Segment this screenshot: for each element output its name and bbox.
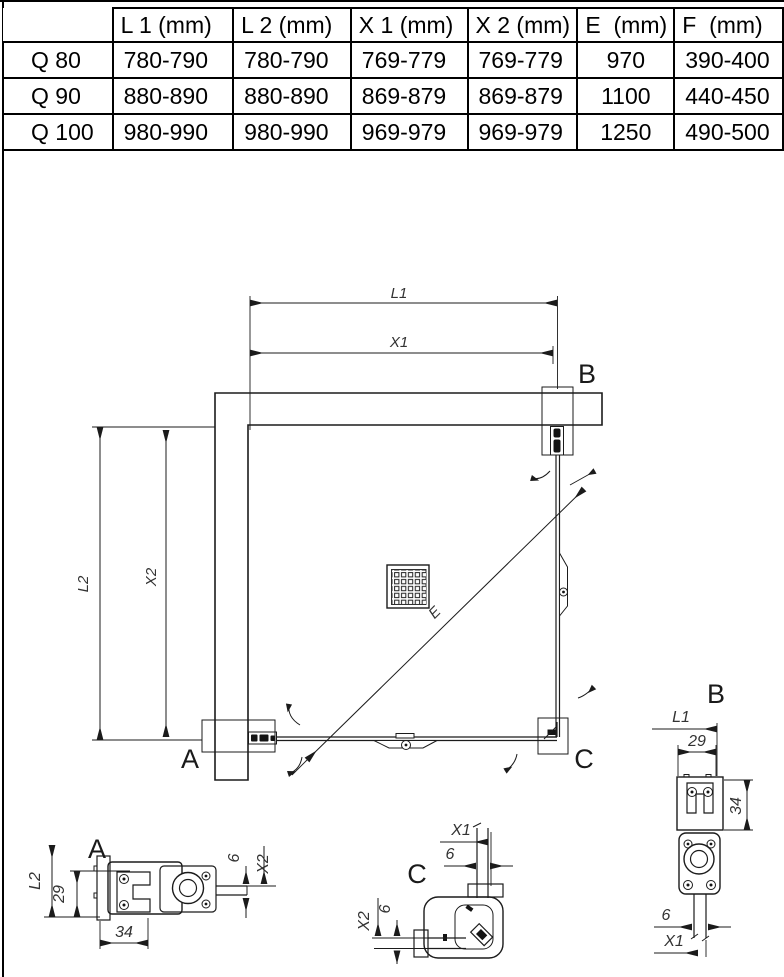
detail-b-label: B [707,679,725,709]
callout-label-b: B [578,359,596,389]
dim-label-x2: X2 [143,567,160,587]
detail-b-dim-6: 6 [662,907,671,924]
detail-a-dim-x2: X2 [255,854,272,875]
callout-label-a: A [181,744,199,774]
dim-label-l1: L1 [391,285,408,302]
detail-c-dim-6-left: 6 [377,904,394,913]
hinge-a [249,732,277,744]
detail-a-dim-34: 34 [115,924,133,941]
detail-a-dim-6: 6 [226,853,243,862]
detail-b: B L1 29 34 [652,679,753,957]
detail-c: C X1 6 X2 [356,822,513,964]
callout-label-c: C [574,744,594,774]
detail-c-dim-x2: X2 [356,911,373,932]
detail-c-dim-x1: X1 [450,822,471,839]
detail-b-dim-x1: X1 [663,933,684,950]
floor-drain [387,565,429,608]
detail-b-dim-34: 34 [728,797,745,815]
corner-connector-c [544,722,557,739]
detail-b-dim-29: 29 [687,733,706,750]
dimension-l1: L1 [250,285,558,430]
detail-b-dim-l1: L1 [672,709,690,726]
dim-label-l2: L2 [75,575,92,592]
dim-label-e: E [425,603,445,623]
door-bracket [396,734,414,739]
door-handle-right [560,553,568,616]
door-panel-right [556,455,568,737]
dim-label-x1: X1 [389,334,408,351]
hinge-b [551,427,564,456]
detail-c-label: C [407,859,427,889]
dimension-x2: X2 [143,430,166,737]
catalog-page: L 1 (mm) L 2 (mm) X 1 (mm) X 2 (mm) E (m… [0,0,784,977]
detail-a-dim-29: 29 [51,885,68,904]
detail-a-dim-l2: L2 [27,872,44,890]
callout-box-c [538,718,568,754]
detail-a: A L2 29 34 [27,834,276,949]
detail-c-dim-6-top: 6 [446,846,455,863]
dimension-e: E [292,471,595,775]
door-swing-arrows [288,471,594,774]
shower-enclosure-drawing: L1 X1 L2 X2 [0,0,784,977]
plan-view: L1 X1 L2 X2 [75,285,602,780]
dimension-x1: X1 [250,334,553,364]
door-panel-bottom [250,734,557,750]
